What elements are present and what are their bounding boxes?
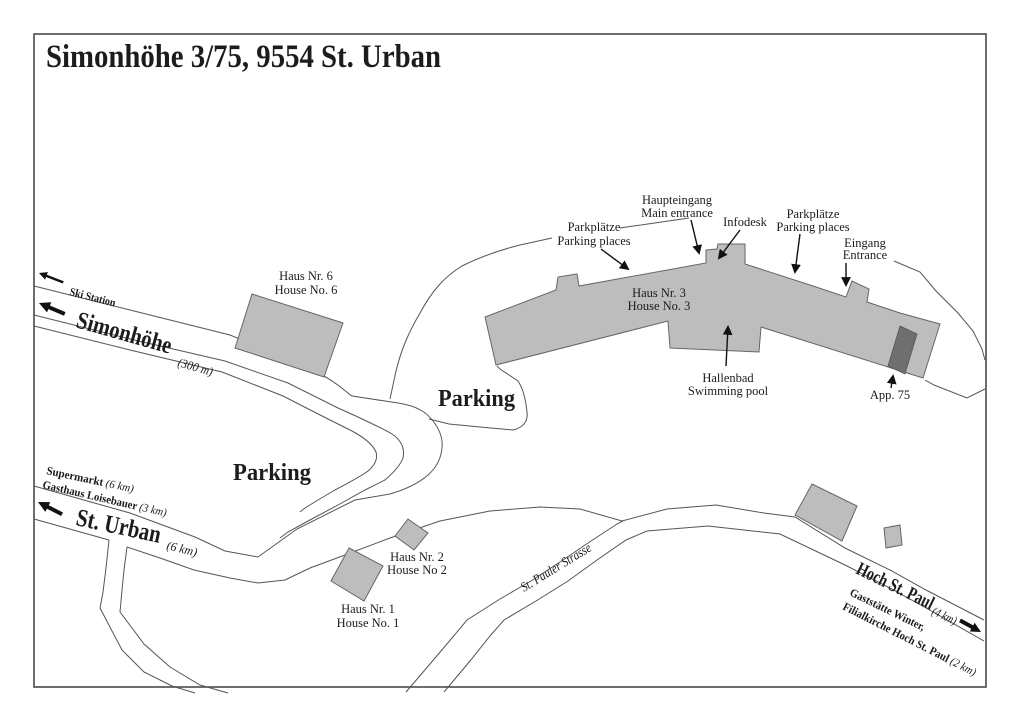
svg-text:Parking: Parking [233, 460, 311, 486]
svg-text:Parking places: Parking places [776, 220, 849, 234]
svg-text:App. 75: App. 75 [870, 388, 910, 402]
svg-text:Swimming pool: Swimming pool [688, 384, 769, 398]
svg-text:Simonhöhe 3/75, 9554 St. Urban: Simonhöhe 3/75, 9554 St. Urban [46, 39, 441, 75]
svg-text:Parkplätze: Parkplätze [568, 220, 621, 234]
svg-text:Parking places: Parking places [557, 234, 630, 248]
svg-text:Parkplätze: Parkplätze [787, 207, 840, 221]
svg-text:Haupteingang: Haupteingang [642, 193, 713, 207]
svg-text:Haus Nr. 6: Haus Nr. 6 [279, 269, 333, 283]
svg-text:Haus Nr. 1: Haus Nr. 1 [341, 602, 395, 616]
svg-text:Haus Nr. 2: Haus Nr. 2 [390, 550, 444, 564]
svg-text:Main entrance: Main entrance [641, 206, 713, 220]
svg-text:House No. 1: House No. 1 [337, 616, 400, 630]
svg-text:Haus Nr. 3: Haus Nr. 3 [632, 286, 686, 300]
svg-text:House No. 3: House No. 3 [628, 299, 691, 313]
svg-text:House No. 6: House No. 6 [275, 283, 338, 297]
svg-text:Infodesk: Infodesk [723, 215, 767, 229]
svg-text:Parking: Parking [438, 386, 515, 412]
svg-text:Entrance: Entrance [843, 248, 888, 262]
svg-text:Hallenbad: Hallenbad [702, 371, 754, 385]
svg-text:House No 2: House No 2 [387, 563, 447, 577]
